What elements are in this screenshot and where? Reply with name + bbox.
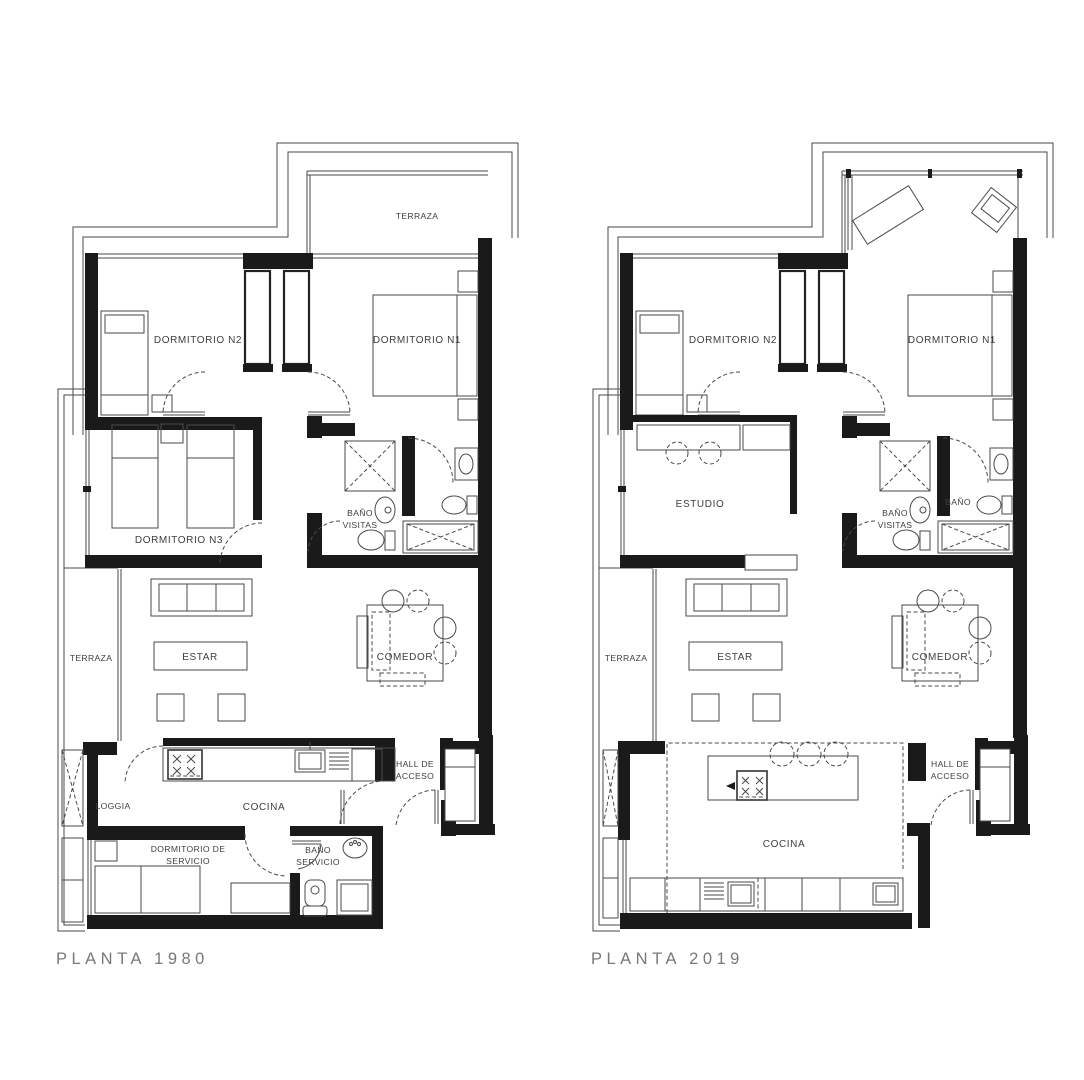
daybed-icon	[853, 186, 924, 245]
label-bano-servicio-2: SERVICIO	[296, 857, 340, 867]
stove-icon	[726, 771, 767, 800]
plan1980-walls	[83, 254, 478, 929]
label-dormitorio-n1: DORMITORIO N1	[908, 335, 996, 346]
label-comedor: COMEDOR	[377, 652, 433, 663]
label-bano: BAÑO	[945, 497, 971, 507]
sink-icon	[295, 742, 325, 772]
label-dormitorio-n2: DORMITORIO N2	[689, 335, 777, 346]
service-door-arc	[245, 834, 287, 876]
label-dorm-servicio-1: DORMITORIO DE	[151, 844, 226, 854]
chair-icon	[666, 442, 688, 464]
floor-plan-1980: TERRAZA DORMITORIO N2 DORMITORIO N1 DORM…	[55, 138, 525, 948]
bathroom-fixtures	[308, 438, 478, 553]
estudio-2019	[620, 415, 797, 570]
label-estar: ESTAR	[717, 652, 753, 663]
label-hall-2: ACCESO	[931, 771, 969, 781]
shower-icon	[337, 880, 372, 915]
stool-icon	[797, 742, 821, 766]
label-cocina: COCINA	[763, 839, 806, 850]
floor-plan-2019: DORMITORIO N2 DORMITORIO N1 ESTUDIO BAÑO…	[590, 138, 1060, 948]
label-bano-visitas-2: VISITAS	[878, 520, 913, 530]
label-hall-1: HALL DE	[396, 759, 434, 769]
label-estar: ESTAR	[182, 652, 218, 663]
label-dormitorio-n3: DORMITORIO N3	[135, 535, 223, 546]
cabinet-icon	[743, 425, 790, 450]
label-bano-visitas-1: BAÑO	[882, 508, 908, 518]
desk-icon	[637, 425, 740, 450]
label-bano-visitas-1: BAÑO	[347, 508, 373, 518]
label-cocina: COCINA	[243, 802, 286, 813]
stool-icon	[770, 742, 794, 766]
drawing-canvas: TERRAZA DORMITORIO N2 DORMITORIO N1 DORM…	[0, 0, 1084, 1080]
label-dormitorio-n1: DORMITORIO N1	[373, 335, 461, 346]
dishrack-icon	[704, 883, 724, 899]
dishrack-icon	[329, 753, 349, 769]
caption-planta-2019: PLANTA 2019	[591, 950, 744, 969]
label-terraza-top: TERRAZA	[396, 211, 439, 221]
service-bath-fixtures	[292, 838, 372, 916]
loggia-door-arc	[125, 746, 163, 784]
label-dormitorio-n2: DORMITORIO N2	[154, 335, 242, 346]
loggia-cabinets	[62, 750, 83, 922]
label-estudio: ESTUDIO	[676, 499, 725, 510]
terrace-2019	[846, 169, 1022, 250]
label-hall-1: HALL DE	[931, 759, 969, 769]
sink-icon	[728, 882, 754, 906]
caption-planta-1980: PLANTA 1980	[56, 950, 209, 969]
living-dining-furniture	[151, 579, 475, 826]
kitchen-counter	[630, 878, 903, 911]
label-terraza-left: TERRAZA	[605, 653, 648, 663]
label-hall-2: ACCESO	[396, 771, 434, 781]
armchair-icon	[972, 188, 1017, 233]
chair-icon	[699, 442, 721, 464]
plan2019-labels: DORMITORIO N2 DORMITORIO N1 ESTUDIO BAÑO…	[605, 335, 996, 850]
bathroom-fixtures	[843, 438, 1013, 553]
toilet-icon	[303, 880, 327, 916]
label-bano-servicio-1: BAÑO	[305, 845, 331, 855]
kitchen-hall-door-arc	[340, 781, 384, 824]
kitchen-island	[708, 756, 858, 800]
stool-icon	[824, 742, 848, 766]
kitchen-2019	[603, 741, 930, 929]
label-comedor: COMEDOR	[912, 652, 968, 663]
label-dorm-servicio-2: SERVICIO	[166, 856, 210, 866]
left-cabinets	[603, 750, 618, 918]
label-loggia: LOGGIA	[95, 801, 130, 811]
label-terraza-left: TERRAZA	[70, 653, 113, 663]
stove-icon	[168, 750, 202, 779]
label-bano-visitas-2: VISITAS	[343, 520, 378, 530]
